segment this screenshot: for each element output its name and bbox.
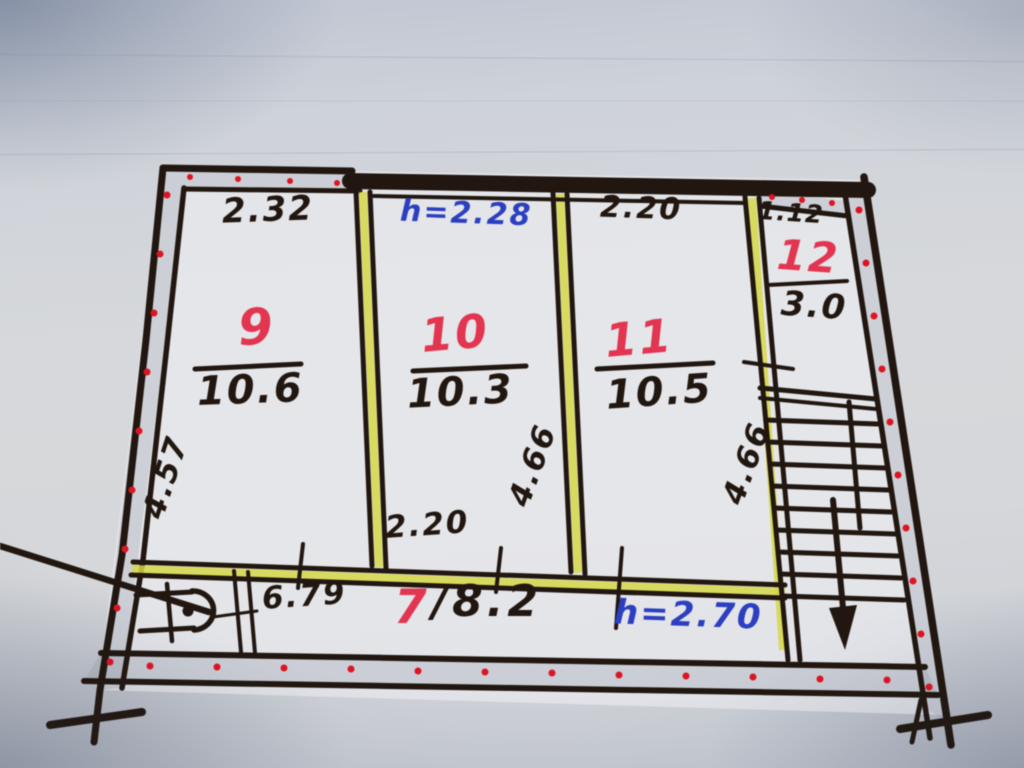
dim-room11-width: 2.20 xyxy=(600,193,683,226)
corridor7-number: 7 xyxy=(394,584,429,631)
floorplan-drawing: 2.32 h=2.28 2.20 1.12 12 3.0 9 10.6 10 1… xyxy=(0,0,1024,768)
dim-room12-width: 1.12 xyxy=(757,198,824,228)
room10-area: 10.3 xyxy=(406,369,515,415)
dim-room10-ceiling-height: h=2.28 xyxy=(400,197,533,232)
room10-number: 10 xyxy=(419,307,491,359)
dim-room9-width: 2.32 xyxy=(221,191,314,228)
dim-room10-width: 2.20 xyxy=(384,507,470,544)
corridor7-area: /8.2 xyxy=(432,580,542,624)
room12-number: 12 xyxy=(776,234,841,280)
dim-corridor-ceiling-height: h=2.70 xyxy=(613,595,763,634)
room9-area: 10.6 xyxy=(196,368,304,412)
floorplan-photo: { "plan": { "rooms": { "room9": {"number… xyxy=(0,0,1024,768)
room9-number: 9 xyxy=(237,301,276,353)
dim-corridor-length: 6.79 xyxy=(261,578,347,615)
room11-number: 11 xyxy=(603,312,675,364)
room11-area: 10.5 xyxy=(605,368,714,415)
room12-area: 3.0 xyxy=(780,287,848,326)
